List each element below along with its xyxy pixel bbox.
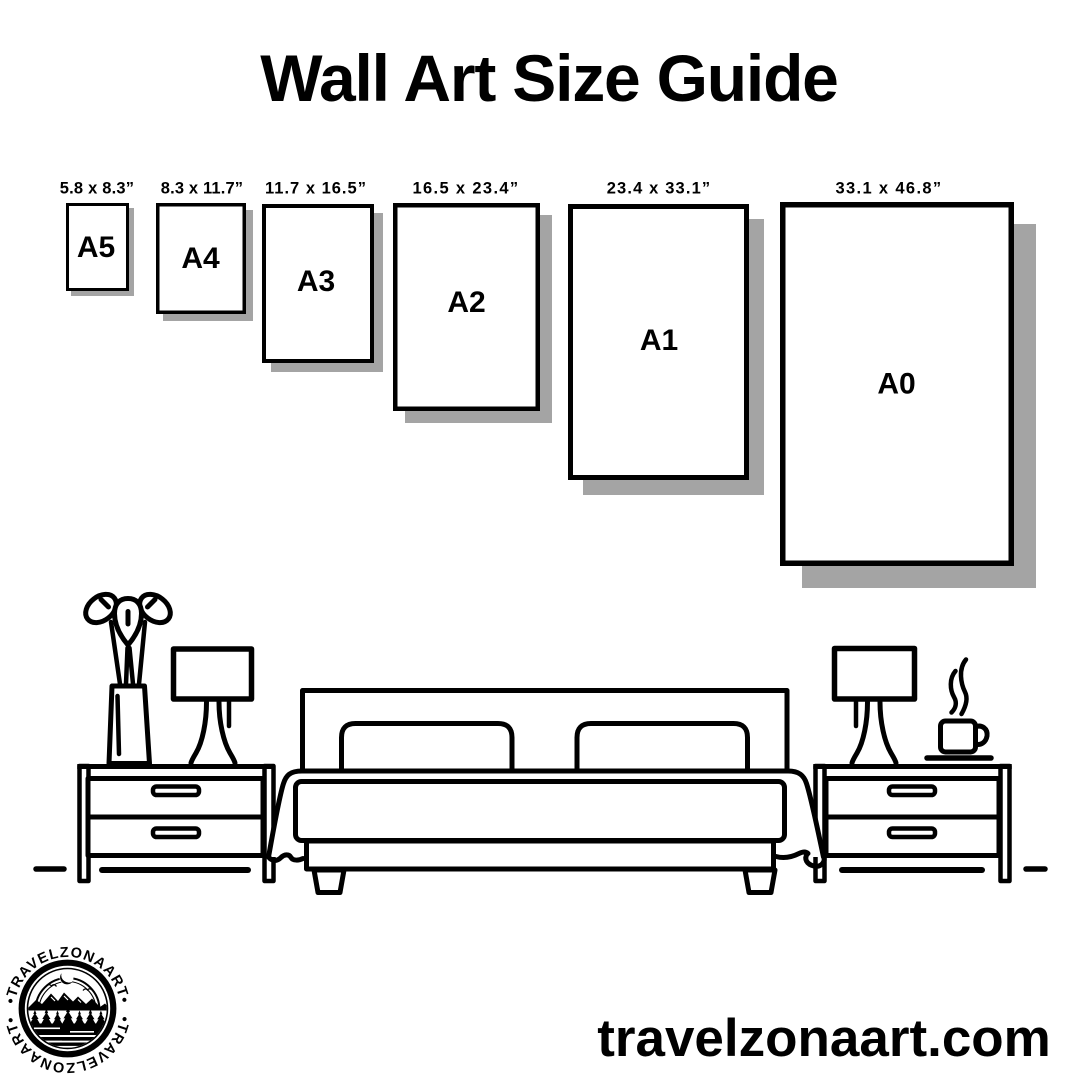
svg-text:5.8 x 8.3”: 5.8 x 8.3” (60, 180, 134, 198)
svg-text:A3: A3 (297, 265, 335, 298)
svg-text:33.1 x 46.8”: 33.1 x 46.8” (835, 180, 942, 198)
svg-text:23.4 x 33.1”: 23.4 x 33.1” (607, 180, 712, 198)
svg-text:A5: A5 (77, 231, 115, 264)
svg-text:A2: A2 (447, 286, 485, 319)
svg-text:travelzonaart.com: travelzonaart.com (597, 1009, 1051, 1068)
svg-text:A0: A0 (877, 368, 915, 401)
svg-text:Wall Art Size Guide: Wall Art Size Guide (260, 41, 837, 115)
svg-text:8.3 x 11.7”: 8.3 x 11.7” (161, 180, 243, 198)
svg-text:A1: A1 (640, 324, 678, 357)
svg-text:A4: A4 (181, 242, 220, 275)
svg-text:11.7 x 16.5”: 11.7 x 16.5” (265, 180, 367, 198)
svg-text:16.5 x 23.4”: 16.5 x 23.4” (412, 180, 519, 198)
